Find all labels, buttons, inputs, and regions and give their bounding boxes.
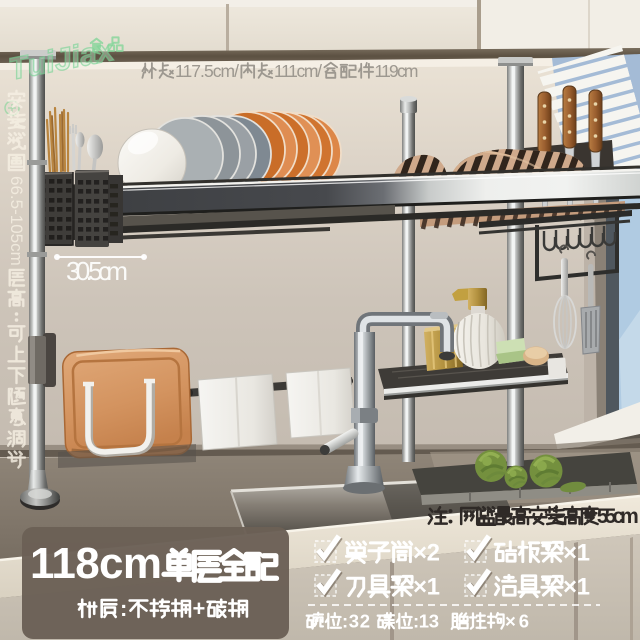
svg-text:66.5-105cm: 66.5-105cm	[7, 176, 26, 266]
svg-text:111cm/: 111cm/	[274, 61, 322, 81]
svg-text::13: :13	[413, 610, 439, 631]
svg-text::: :	[120, 596, 127, 621]
svg-text:×1: ×1	[563, 539, 590, 566]
svg-text::32: :32	[342, 610, 370, 631]
svg-text:×1: ×1	[413, 573, 440, 600]
svg-text:119cm: 119cm	[375, 61, 419, 81]
svg-text:+: +	[193, 596, 206, 621]
svg-text:×2: ×2	[413, 539, 440, 566]
svg-text:55cm: 55cm	[597, 505, 639, 528]
svg-text:30.5cm: 30.5cm	[66, 256, 128, 286]
svg-text:117.5cm/: 117.5cm/	[175, 61, 239, 81]
svg-text:118cm: 118cm	[30, 539, 162, 588]
svg-text:×1: ×1	[563, 573, 590, 600]
